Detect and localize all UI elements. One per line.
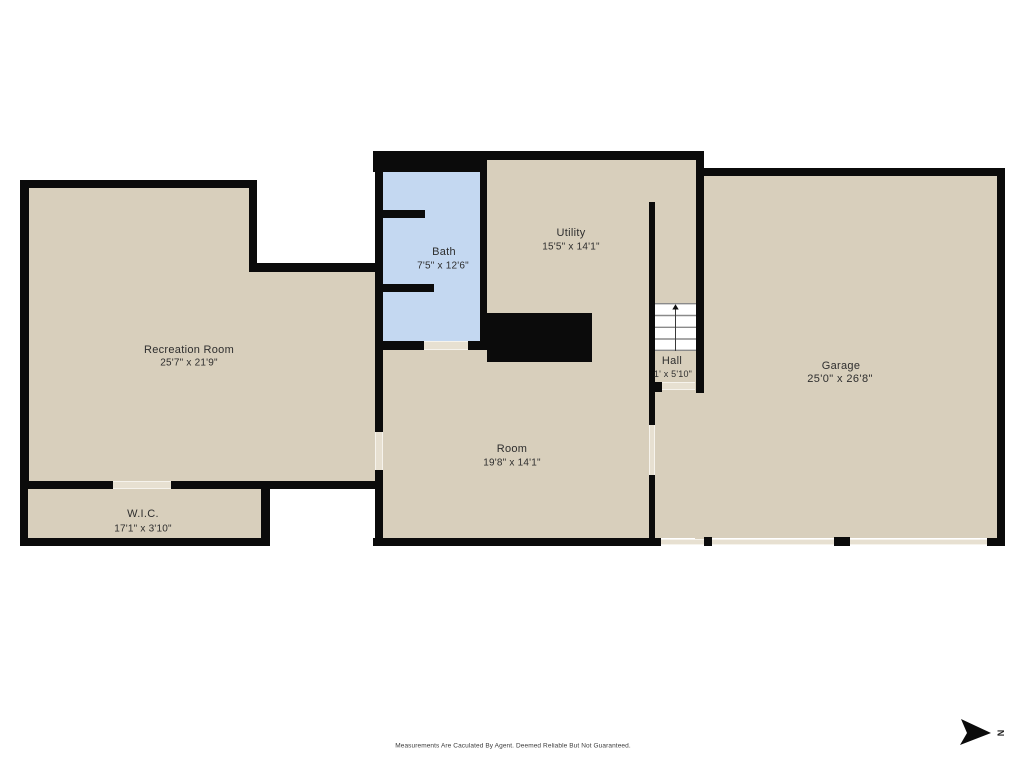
- svg-text:N: N: [996, 730, 1006, 737]
